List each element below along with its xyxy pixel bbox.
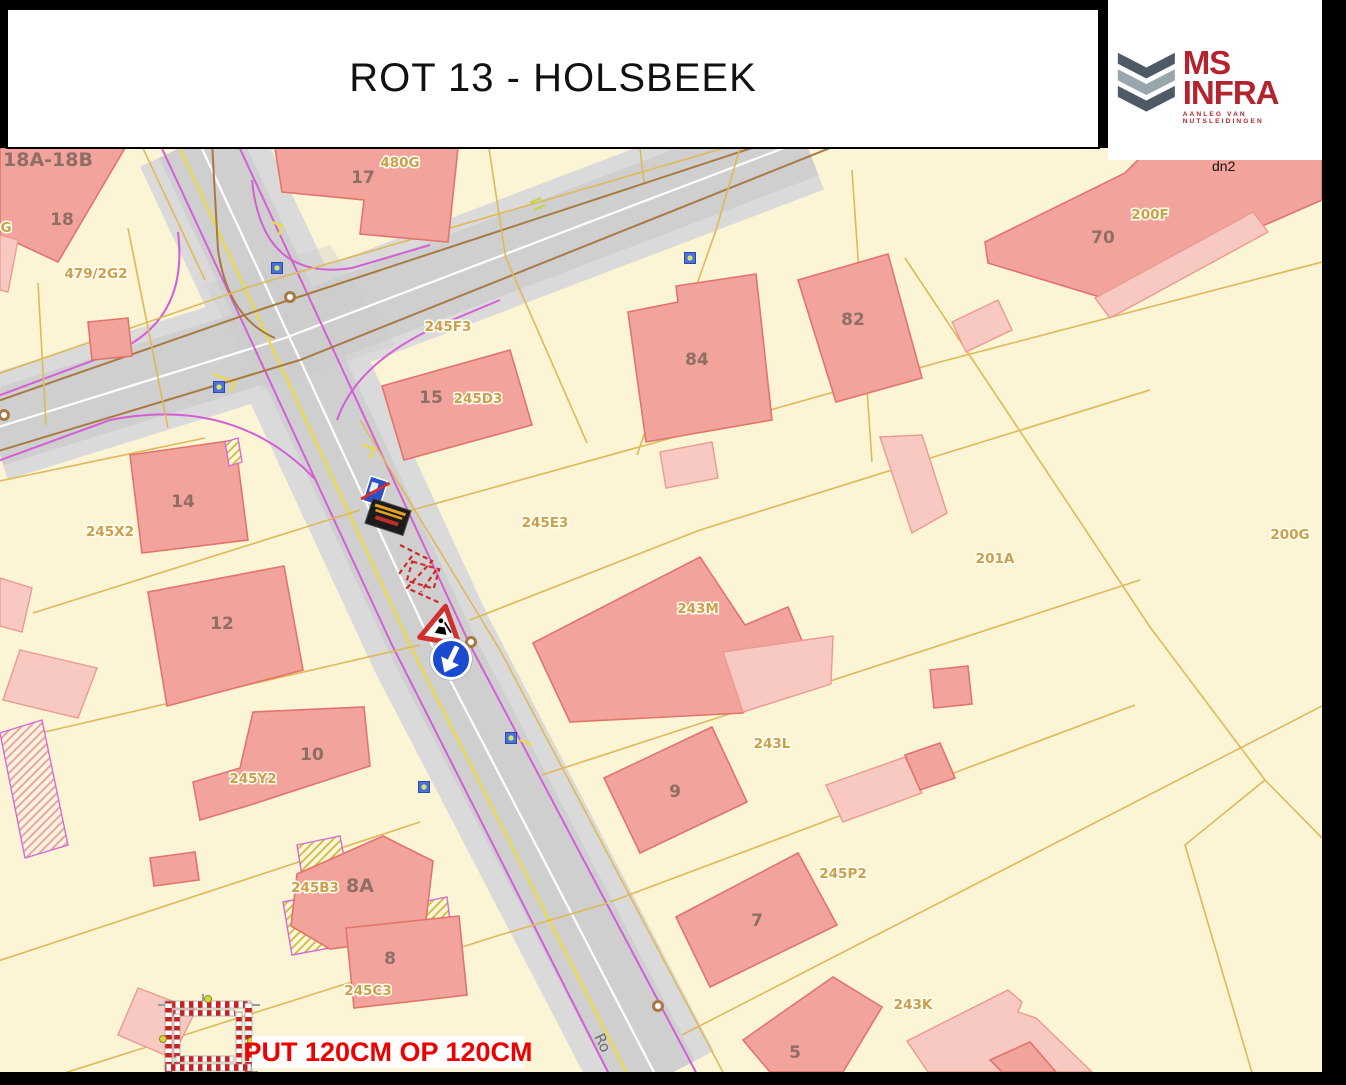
building-479-shed <box>88 318 132 360</box>
title-box: ROT 13 - HOLSBEEK <box>6 8 1100 149</box>
ms-infra-chevron-icon <box>1116 48 1177 120</box>
house-number: 10 <box>300 745 324 765</box>
house-number: 15 <box>419 388 443 408</box>
building-10-shed <box>150 852 199 886</box>
parcel-label: 245P2 <box>819 866 866 882</box>
house-number: 9 <box>669 782 681 802</box>
blue-marker-icon <box>272 263 283 274</box>
parcel-label: 479/2G2 <box>65 266 128 282</box>
manhole-icon <box>654 1002 663 1011</box>
manhole-icon <box>467 638 476 647</box>
barrier-lamp-icon <box>160 1036 167 1043</box>
house-number: 17 <box>351 168 375 188</box>
parcel-label: 245C3 <box>344 983 391 999</box>
page-title: ROT 13 - HOLSBEEK <box>349 56 757 101</box>
manhole-icon <box>286 293 295 302</box>
plan-sheet: 18A-18B 18 17 15 14 12 10 8A 8 84 82 70 … <box>0 0 1346 1085</box>
house-number: 5 <box>789 1043 801 1063</box>
parcel-label: 245F3 <box>425 319 472 335</box>
blue-marker-icon <box>214 382 225 393</box>
house-number: 82 <box>841 310 865 330</box>
parcel-label: 245X2 <box>86 524 134 540</box>
house-number: 84 <box>685 350 709 370</box>
parcel-label: 245E3 <box>522 515 569 531</box>
parcel-label: 243M <box>677 601 719 617</box>
parcel-label: 243L <box>754 736 791 752</box>
barrier-lamp-icon <box>205 996 212 1003</box>
parcel-label: 200G <box>1270 527 1309 543</box>
parcel-label: 245D3 <box>454 391 503 407</box>
corner-note: dn2 <box>1212 158 1235 174</box>
blue-marker-icon <box>685 253 696 264</box>
manhole-icon <box>0 411 9 420</box>
parcel-label: 480G <box>380 155 419 171</box>
map-canvas: 18A-18B 18 17 15 14 12 10 8A 8 84 82 70 … <box>0 148 1322 1072</box>
pit-annotation-text: PUT 120CM OP 120CM <box>243 1037 532 1067</box>
house-number: 18 <box>50 210 74 230</box>
house-number: 8A <box>346 875 374 897</box>
parcel-label: 245B3 <box>291 880 339 896</box>
parcel-label: 245Y2 <box>229 771 276 787</box>
house-number: 14 <box>171 492 195 512</box>
house-number: 12 <box>210 614 234 634</box>
mandatory-direction-arrow-sign-icon <box>430 638 472 680</box>
pit-annotation: PUT 120CM OP 120CM <box>243 1036 532 1068</box>
logo-tagline: AANLEG VAN NUTSLEIDINGEN <box>1183 111 1322 125</box>
logo-box: MS INFRA AANLEG VAN NUTSLEIDINGEN <box>1108 0 1322 160</box>
house-number: 70 <box>1091 228 1115 248</box>
house-number: 18A-18B <box>3 149 93 171</box>
blue-marker-icon <box>506 733 517 744</box>
house-number: 7 <box>751 911 763 931</box>
blue-marker-icon <box>419 782 430 793</box>
parcel-label: 243K <box>894 997 933 1013</box>
house-number: 8 <box>384 949 396 969</box>
logo-brand: MS INFRA <box>1183 48 1322 108</box>
building-243l-shed <box>930 666 972 708</box>
parcel-label: G <box>0 220 11 236</box>
parcel-label: 200F <box>1131 207 1168 223</box>
parcel-label: 201A <box>976 551 1015 567</box>
